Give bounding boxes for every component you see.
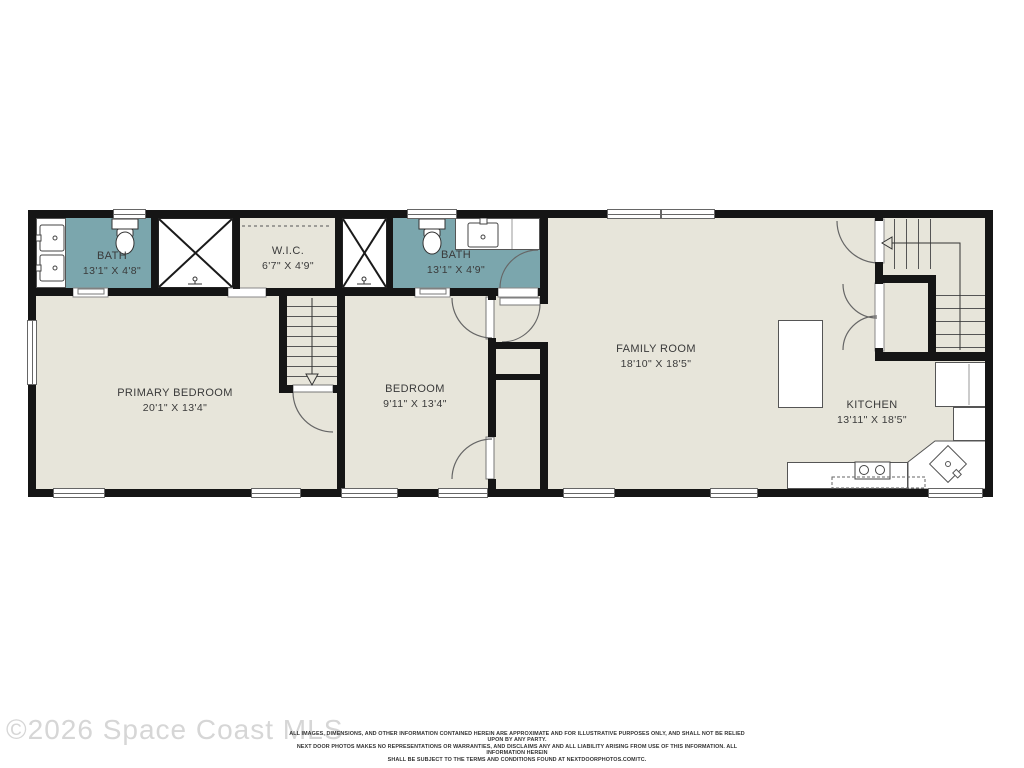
bedroom-dims: 9'11" X 13'4" — [345, 398, 485, 410]
family-room-name: FAMILY ROOM — [566, 343, 746, 355]
kitchen-name: KITCHEN — [782, 399, 962, 411]
wall-closet1-top — [488, 342, 548, 349]
window-bottom-1 — [53, 488, 105, 498]
window-bottom-2 — [251, 488, 301, 498]
label-bedroom: BEDROOM 9'11" X 13'4" — [345, 383, 485, 410]
stairs-right-flight-treads — [936, 283, 986, 352]
wic-name: W.I.C. — [228, 245, 348, 257]
wall-outer-bottom — [28, 489, 993, 497]
primary-bedroom-dims: 20'1" X 13'4" — [85, 402, 265, 414]
stairs-upper-flight-treads — [883, 219, 936, 269]
wall-hall-top-c — [266, 288, 415, 296]
bath2-dims: 13'1" X 4'9" — [396, 264, 516, 276]
kitchen-island — [778, 320, 823, 408]
wall-outer-top — [28, 210, 993, 218]
wall-stairblock-left-a — [875, 262, 883, 284]
wall-closet1-bottom — [488, 374, 548, 380]
family-room-dims: 18'10" X 18'5" — [566, 358, 746, 370]
label-bath1: BATH 13'1" X 4'8" — [52, 250, 172, 277]
floor-plan-page: BATH 13'1" X 4'8" W.I.C. 6'7" X 4'9" BAT… — [0, 0, 1024, 768]
wall-stairblock-left-top — [875, 218, 883, 221]
disclaimer-text: ALL IMAGES, DIMENSIONS, AND OTHER INFORM… — [287, 731, 747, 763]
label-bath2: BATH 13'1" X 4'9" — [396, 249, 516, 276]
wall-stairblock-bottom — [875, 352, 993, 361]
wall-stairs-left — [279, 296, 287, 393]
disclaimer-line-3: SHALL BE SUBJECT TO THE TERMS AND CONDIT… — [287, 757, 747, 763]
wall-hall-top-b — [108, 288, 228, 296]
wall-hall-top-a — [36, 288, 73, 296]
window-bottom-6 — [710, 488, 758, 498]
disclaimer-line-1: ALL IMAGES, DIMENSIONS, AND OTHER INFORM… — [287, 731, 747, 744]
kitchen-dims: 13'11" X 18'5" — [782, 414, 962, 426]
wall-bedroom-right-b — [488, 338, 496, 437]
window-bottom-3 — [341, 488, 398, 498]
stairs-middle-treads — [287, 297, 337, 385]
bath1-name: BATH — [52, 250, 172, 262]
window-top-2 — [407, 209, 457, 219]
wall-bedroom-left — [337, 296, 345, 489]
bath2-name: BATH — [396, 249, 516, 261]
wall-hall-top-d — [450, 288, 498, 296]
window-top-4 — [661, 209, 715, 219]
wall-hall-top-e — [538, 288, 548, 296]
window-bottom-5 — [563, 488, 615, 498]
window-top-1 — [113, 209, 146, 219]
wall-stairs-bottom-a — [279, 385, 293, 393]
kitchen-counter-bottom — [787, 462, 908, 489]
wall-bedroom-right-c — [488, 479, 496, 489]
disclaimer-line-2: NEXT DOOR PHOTOS MAKES NO REPRESENTATION… — [287, 744, 747, 757]
bedroom-name: BEDROOM — [345, 383, 485, 395]
window-bottom-7 — [928, 488, 983, 498]
label-family-room: FAMILY ROOM 18'10" X 18'5" — [566, 343, 746, 370]
wall-bedroom-right-a — [488, 296, 496, 300]
window-bottom-4 — [438, 488, 488, 498]
label-wic: W.I.C. 6'7" X 4'9" — [228, 245, 348, 272]
label-primary-bedroom: PRIMARY BEDROOM 20'1" X 13'4" — [85, 387, 265, 414]
primary-bedroom-name: PRIMARY BEDROOM — [85, 387, 265, 399]
window-top-3 — [607, 209, 661, 219]
wall-pantry-top — [883, 275, 936, 283]
window-left-1 — [27, 320, 37, 385]
shower2 — [342, 218, 387, 288]
wall-pantry-right — [928, 283, 936, 361]
wic-dims: 6'7" X 4'9" — [228, 260, 348, 272]
bath1-dims: 13'1" X 4'8" — [52, 265, 172, 277]
bath2-vanity — [455, 218, 540, 250]
label-kitchen: KITCHEN 13'11" X 18'5" — [782, 399, 962, 426]
wall-closetcol-right — [540, 342, 548, 489]
wall-shower2-bath2 — [387, 218, 393, 289]
